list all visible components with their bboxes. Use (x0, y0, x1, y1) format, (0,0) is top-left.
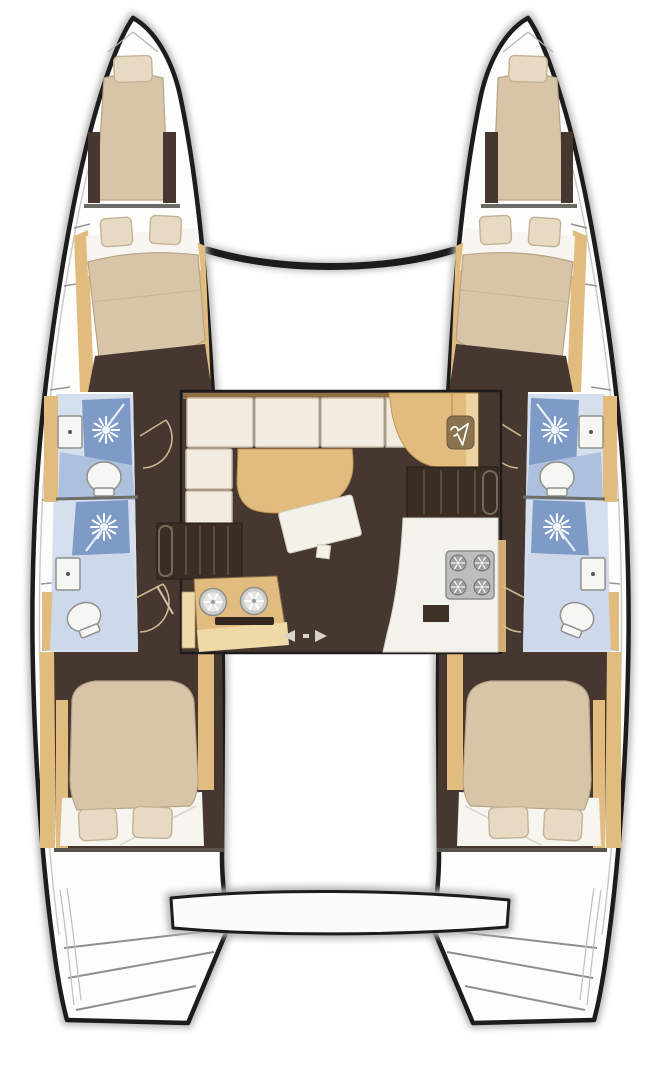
catamaran-floor-plan (0, 0, 661, 1080)
galley-sink-icon (241, 588, 268, 615)
burner-icon (474, 579, 490, 595)
galley-sink-icon (200, 589, 227, 616)
table-leg (316, 544, 330, 558)
stove (446, 551, 494, 599)
galley-counter (383, 518, 506, 652)
burner-icon (450, 579, 466, 595)
galley-appliance (423, 605, 449, 622)
burner-icon (474, 555, 490, 571)
stairs-starboard-hull (407, 467, 498, 518)
galley-sink-unit (182, 576, 289, 652)
drawer-slot (215, 617, 274, 625)
floor-plan-canvas (0, 0, 661, 1080)
aft-transom-beam (171, 891, 509, 933)
saloon (157, 391, 506, 653)
forward-crossbeam (207, 250, 454, 267)
hanging-locker (447, 416, 474, 449)
burner-icon (450, 555, 466, 571)
